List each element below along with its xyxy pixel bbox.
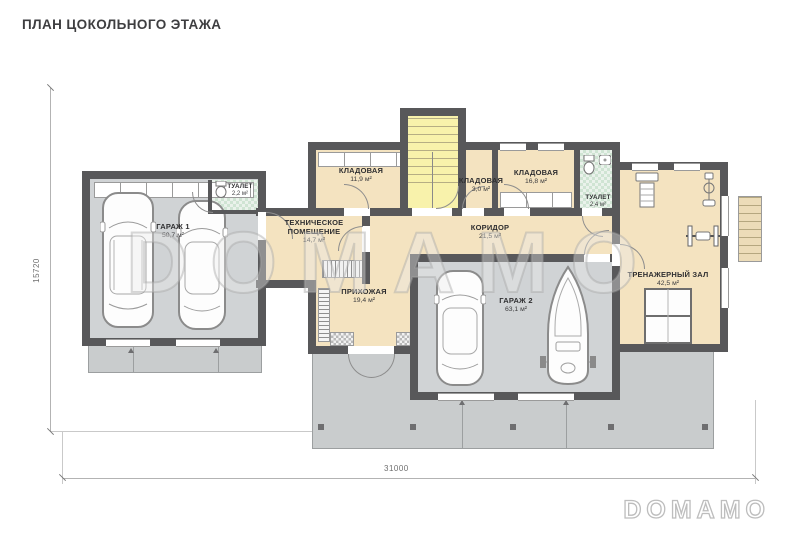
- window: [721, 196, 729, 236]
- bench-press-icon: [684, 222, 722, 250]
- wall: [208, 210, 262, 214]
- dimension-value-bottom: 31000: [384, 464, 409, 473]
- pillar: [608, 424, 614, 430]
- room-label-storage-2: КЛАДОВАЯ 3,0 м²: [459, 176, 503, 193]
- pillar: [510, 424, 516, 430]
- entrance-arrow: [213, 348, 219, 353]
- dimension-line-bottom: [62, 478, 756, 479]
- garage-door-opening: [518, 393, 574, 401]
- cabinet-row: [318, 152, 402, 167]
- wall: [82, 171, 266, 179]
- toilet-icon: [214, 181, 228, 199]
- wall: [612, 162, 728, 170]
- dimension-line-left: [50, 88, 51, 432]
- wall: [720, 162, 728, 352]
- stairs-icon: [408, 118, 458, 190]
- toilet-icon: [582, 155, 596, 175]
- garage-door-opening: [106, 339, 150, 347]
- dimension-extension-line: [755, 400, 756, 484]
- wall: [400, 108, 466, 116]
- wall: [82, 171, 90, 346]
- stair-rail: [432, 152, 433, 208]
- room-label-storage-3: КЛАДОВАЯ 16,8 м²: [514, 168, 558, 185]
- garage-door-opening: [176, 339, 220, 347]
- driveway-left: [88, 346, 262, 373]
- wall: [258, 171, 266, 212]
- pillar: [702, 424, 708, 430]
- window: [674, 163, 700, 171]
- room-label-wc-1: ТУАЛЕТ 2,2 м²: [227, 183, 252, 197]
- exercise-bike-icon: [698, 172, 720, 208]
- treadmill-icon: [634, 172, 660, 208]
- pillar: [410, 424, 416, 430]
- wall: [308, 142, 408, 150]
- window: [538, 143, 564, 151]
- wall: [400, 108, 408, 216]
- pillar: [318, 424, 324, 430]
- entrance-arrow: [128, 348, 134, 353]
- wall: [574, 142, 580, 214]
- dimension-extension-line: [50, 431, 312, 432]
- entrance-door-opening: [348, 346, 394, 354]
- window: [500, 143, 526, 151]
- room-label-storage-1: КЛАДОВАЯ 11,9 м²: [339, 166, 383, 183]
- page-title: ПЛАН ЦОКОЛЬНОГО ЭТАЖА: [22, 17, 221, 32]
- brand-logo: DOMAMO: [623, 496, 770, 525]
- window: [721, 268, 729, 308]
- wall: [458, 142, 616, 150]
- exterior-stairs: [738, 196, 762, 262]
- floor-plan-canvas: ПЛАН ЦОКОЛЬНОГО ЭТАЖА: [0, 0, 800, 533]
- doormat: [330, 332, 354, 346]
- wall: [612, 344, 728, 352]
- watermark-text: DOMAMO: [126, 220, 659, 306]
- wall: [308, 142, 316, 216]
- sink-icon: [599, 155, 611, 165]
- dimension-value-left: 15720: [32, 258, 41, 283]
- window: [632, 163, 658, 171]
- garage-door-opening: [438, 393, 494, 401]
- room-label-wc-2: ТУАЛЕТ 2,4 м²: [585, 194, 610, 208]
